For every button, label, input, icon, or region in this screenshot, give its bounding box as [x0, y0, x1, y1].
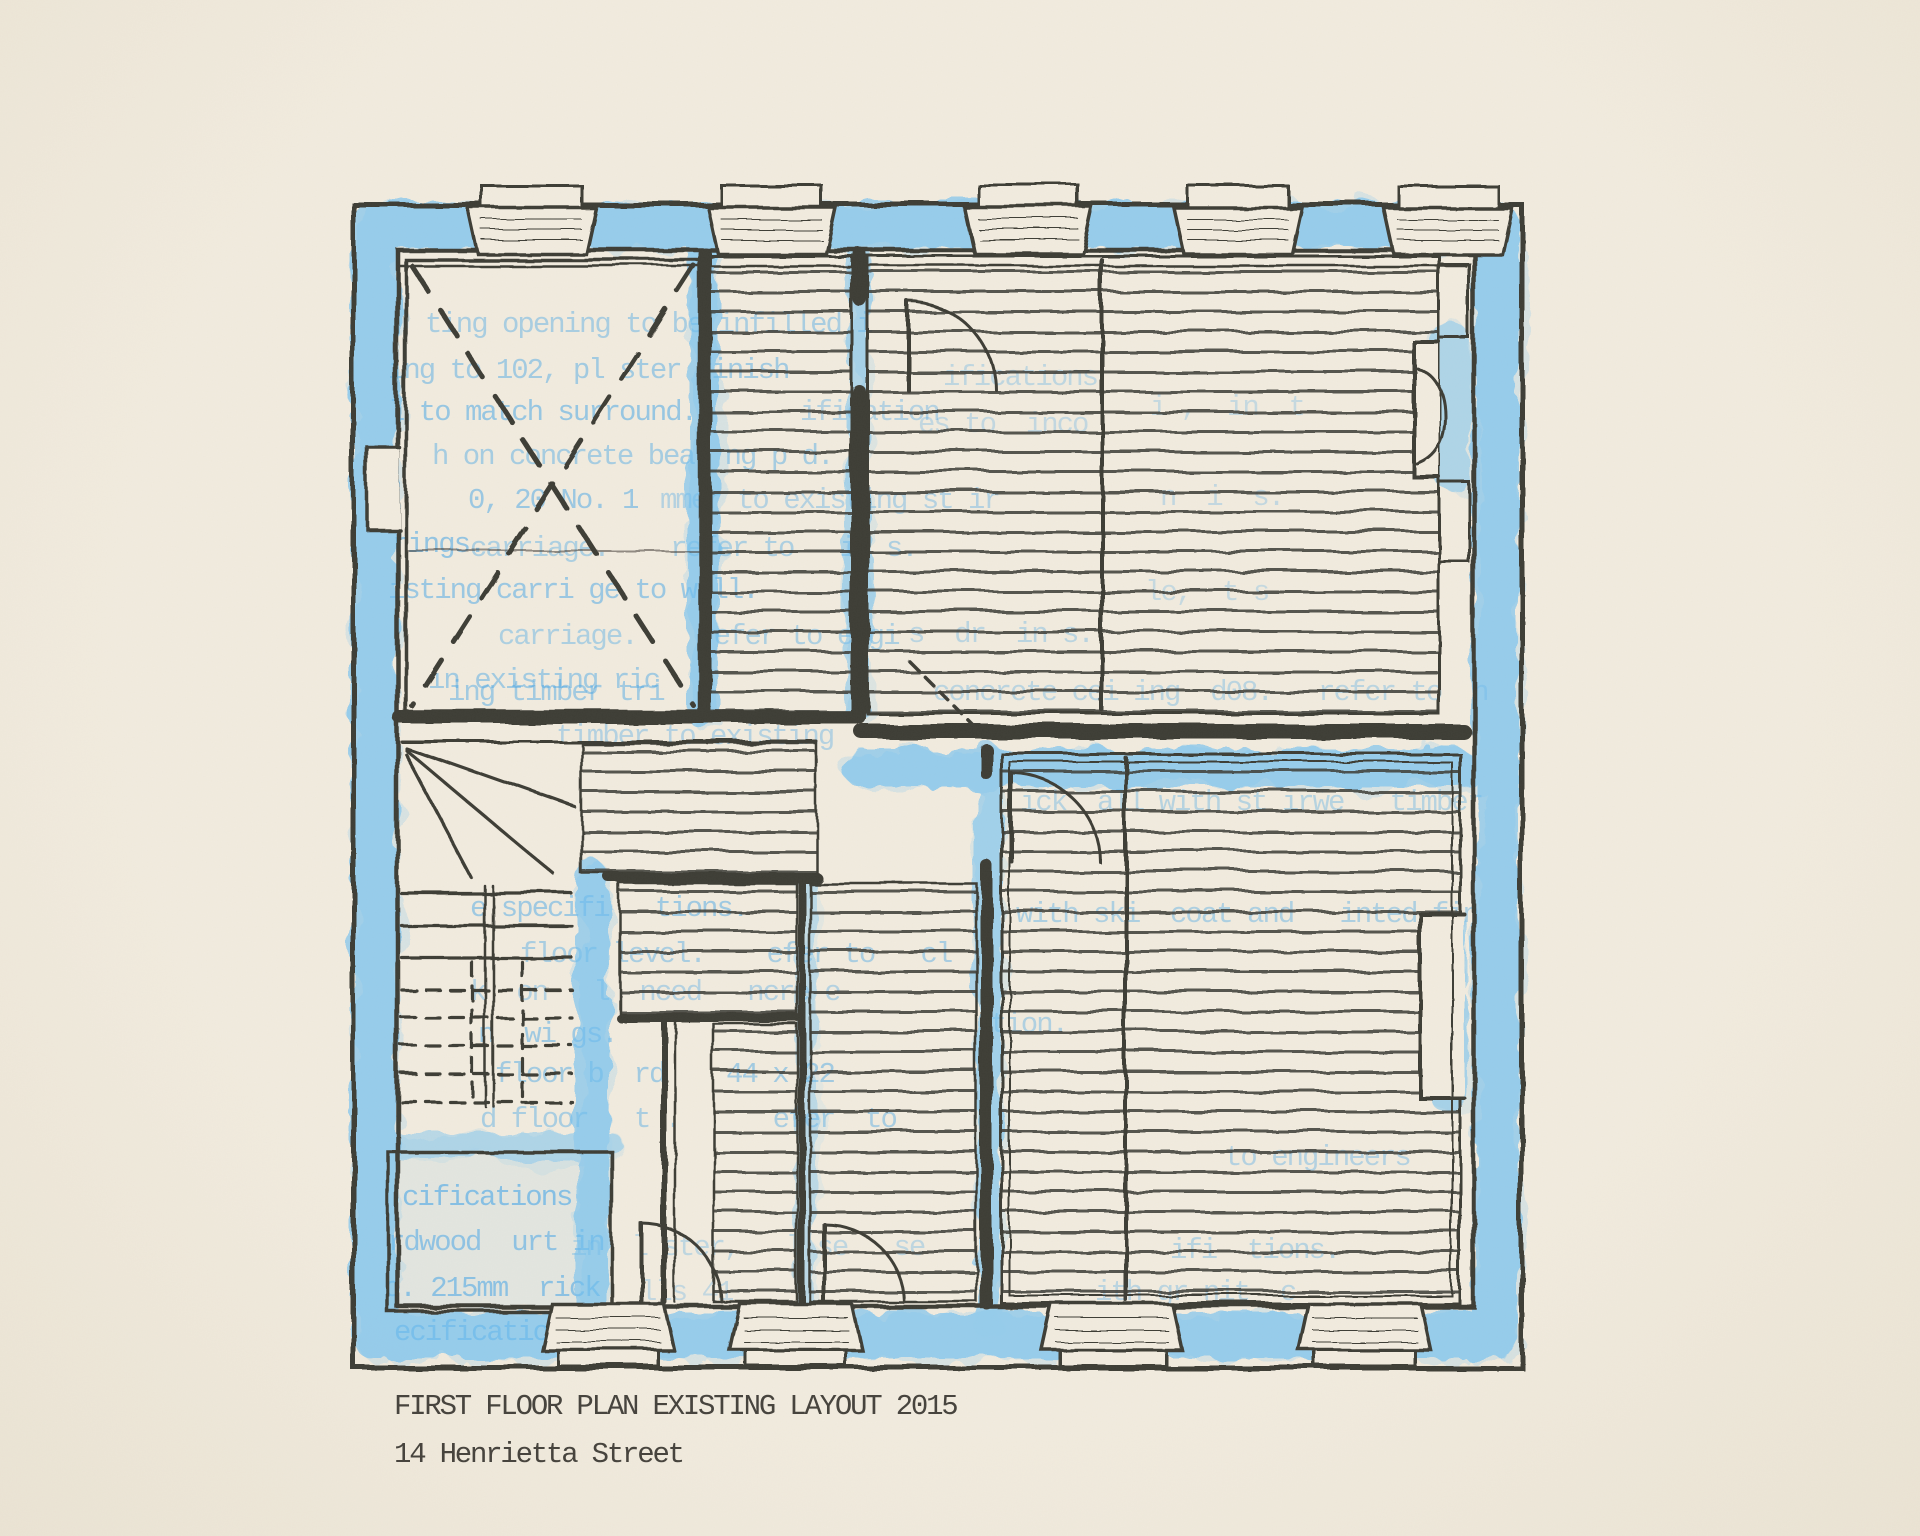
paper-grain [0, 0, 1920, 1536]
floor-plan-svg: ting opening to be infilled iing to 102,… [0, 0, 1920, 1536]
artwork-paper: ting opening to be infilled iing to 102,… [0, 0, 1920, 1536]
